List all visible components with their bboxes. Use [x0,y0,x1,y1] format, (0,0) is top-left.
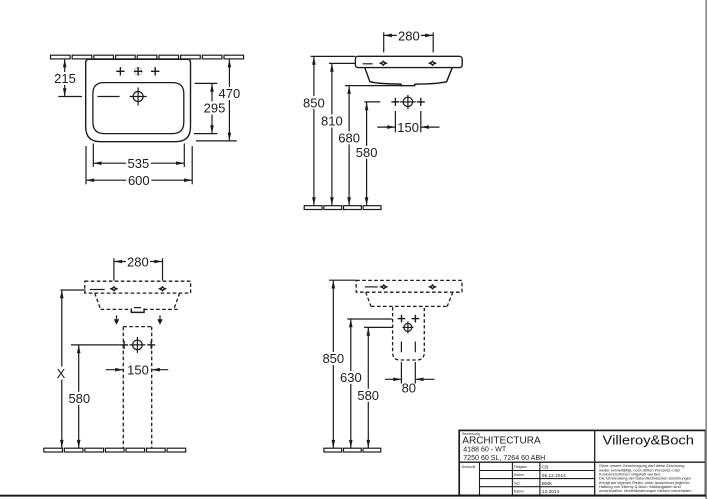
svg-text:630: 630 [340,370,362,385]
svg-text:X: X [57,366,66,381]
svg-text:470: 470 [219,86,241,101]
svg-text:Gez.: Gez. [514,481,521,485]
svg-text:580: 580 [357,388,379,403]
svg-text:580: 580 [68,391,90,406]
svg-text:280: 280 [398,28,420,43]
svg-text:850: 850 [303,95,325,110]
svg-text:680: 680 [338,131,360,146]
svg-text:Freigabe: Freigabe [514,465,527,469]
svg-text:unverbindlich. Modelländerunge: unverbindlich. Modelländerungen bleiben … [599,488,692,493]
svg-text:Gedruckt: Gedruckt [462,465,476,469]
svg-text:280: 280 [127,254,149,269]
svg-text:Villeroy&Boch: Villeroy&Boch [603,433,695,448]
svg-text:150: 150 [127,362,149,377]
svg-text:7250 60 SL, 7264 60 ABH: 7250 60 SL, 7264 60 ABH [463,454,545,462]
svg-text:535: 535 [128,156,150,171]
svg-text:295: 295 [204,101,226,116]
svg-text:580: 580 [356,145,378,160]
svg-text:12.2014: 12.2014 [542,489,560,495]
svg-text:850: 850 [322,351,344,366]
svg-text:Datum: Datum [514,473,524,477]
svg-text:05.12.2014: 05.12.2014 [542,473,566,479]
svg-text:810: 810 [321,114,343,129]
svg-text:4188 60 - WT: 4188 60 - WT [463,445,507,453]
svg-text:80: 80 [402,381,416,396]
svg-text:150: 150 [397,120,419,135]
svg-text:BMK: BMK [542,481,553,487]
svg-text:CB: CB [542,465,549,471]
svg-text:215: 215 [54,71,76,86]
svg-text:600: 600 [128,173,150,188]
svg-text:Datum: Datum [514,489,524,493]
